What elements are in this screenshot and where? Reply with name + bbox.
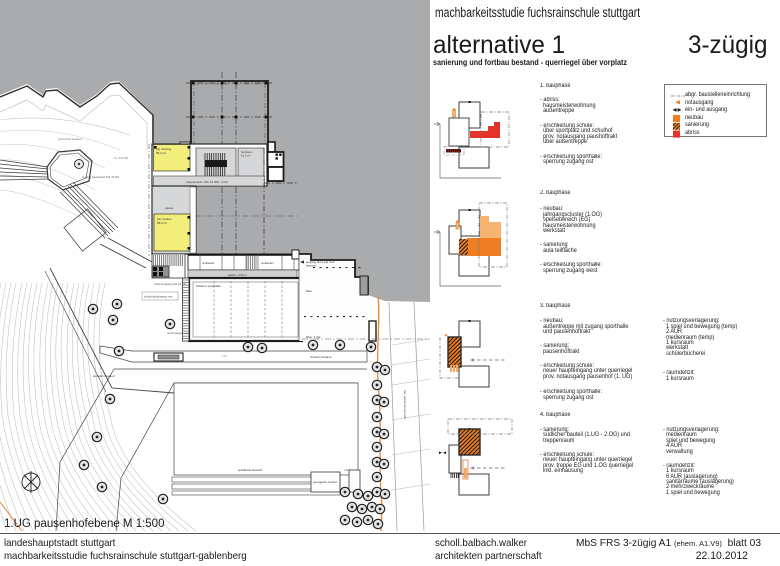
svg-text:pausenhof bestand: pausenhof bestand	[58, 137, 82, 141]
svg-text:galerie -3,60 m: galerie -3,60 m	[228, 273, 247, 277]
svg-text:nebeneingang 241,14 NN: nebeneingang 241,14 NN	[154, 282, 186, 286]
svg-text:fam gablenbergstraße: fam gablenbergstraße	[403, 390, 407, 420]
svg-text:treppenraum 341,16 NN= -3,60: treppenraum 341,16 NN= -3,60	[186, 180, 228, 184]
svg-text:außentreppe neu: außentreppe neu	[167, 331, 189, 335]
svg-text:falen.: falen.	[306, 289, 313, 293]
svg-text:sprunggrube bestand: sprunggrube bestand	[313, 481, 337, 484]
svg-text:vöstufen bestand: vöstufen bestand	[310, 355, 332, 359]
svg-text:luftraum sporthalle: luftraum sporthalle	[196, 284, 221, 288]
svg-text:ca. 241 NN: ca. 241 NN	[114, 156, 128, 160]
svg-text:1.UG pausenhofebene M 1:500: 1.UG pausenhofebene M 1:500	[4, 518, 164, 530]
svg-text:pause: pause	[165, 206, 174, 210]
svg-text:falen. 6 stpl.: falen. 6 stpl.	[306, 335, 321, 339]
svg-text:landschaftsplateau neu: landschaftsplateau neu	[144, 295, 173, 299]
svg-text:bestand: bestand	[306, 264, 316, 268]
svg-text:58,4 m²: 58,4 m²	[156, 151, 166, 155]
svg-text:61,3 m²: 61,3 m²	[241, 154, 251, 158]
svg-text:spielfläche bestand: spielfläche bestand	[238, 468, 262, 472]
svg-text:umkleiden: umkleiden	[261, 261, 274, 265]
svg-text:58,6 m²: 58,6 m²	[157, 221, 167, 225]
svg-text:2,07: 2,07	[222, 355, 227, 358]
svg-text:zugang pausenhof 341,74 NN: zugang pausenhof 341,74 NN	[82, 175, 119, 179]
svg-text:laufbahn bestand: laufbahn bestand	[93, 374, 115, 378]
svg-text:umkleiden: umkleiden	[202, 261, 215, 265]
